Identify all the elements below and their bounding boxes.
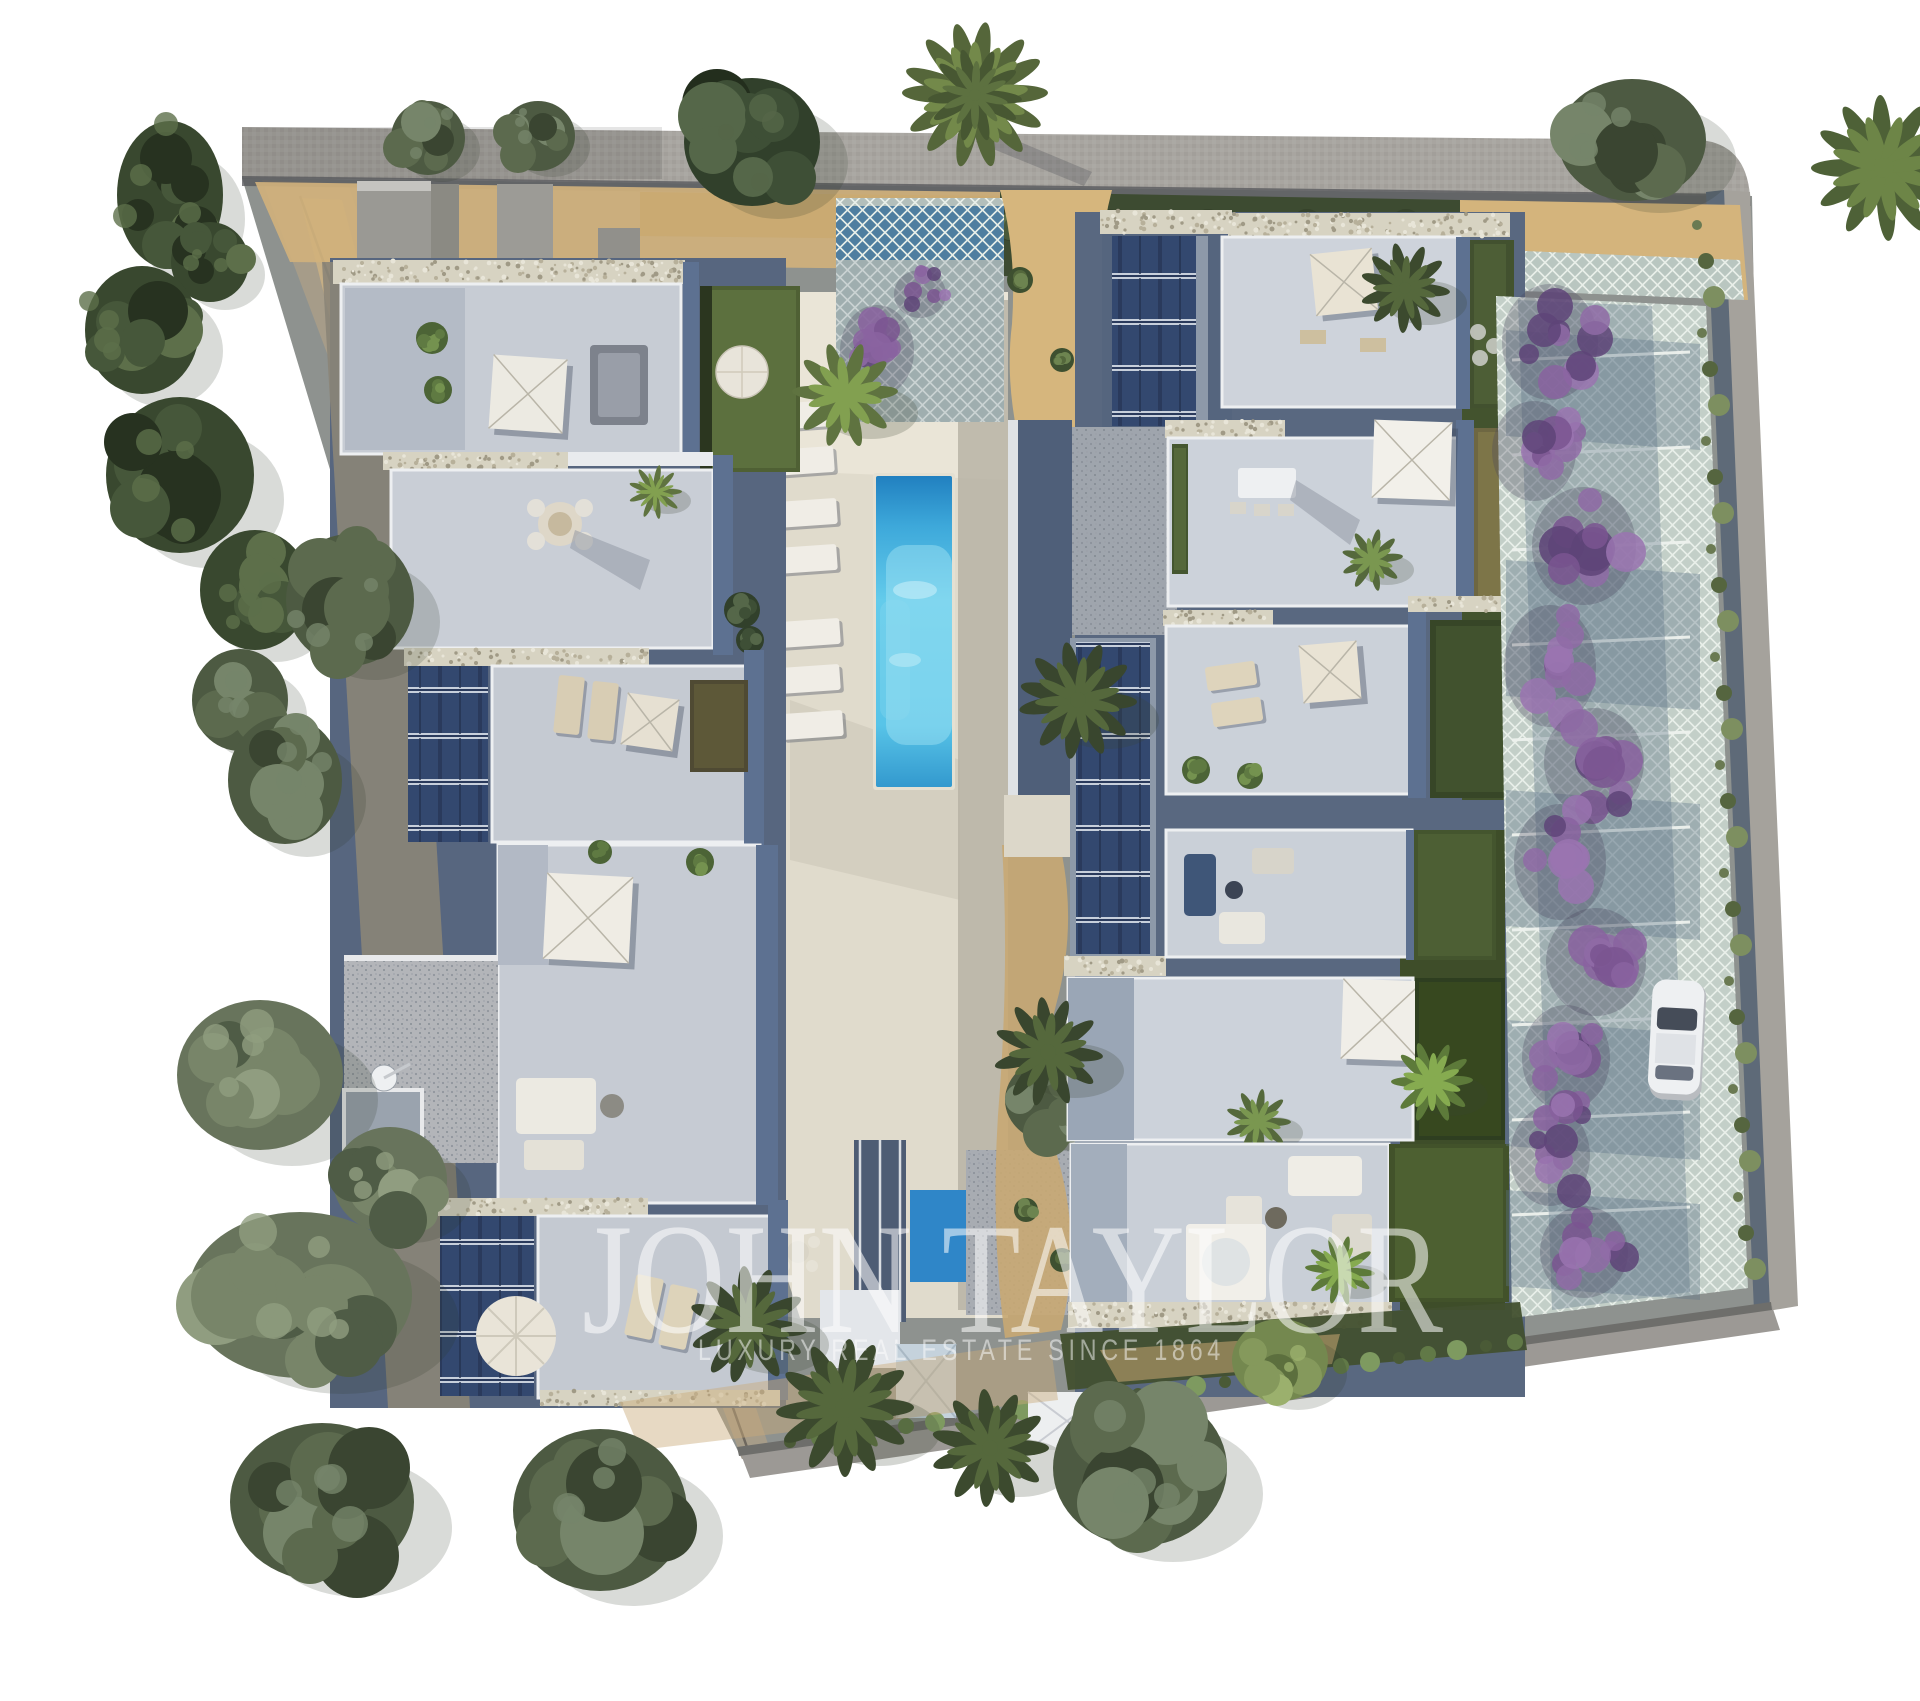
svg-text:LUXURY REAL ESTATE SINCE 1864: LUXURY REAL ESTATE SINCE 1864: [698, 1334, 1225, 1367]
